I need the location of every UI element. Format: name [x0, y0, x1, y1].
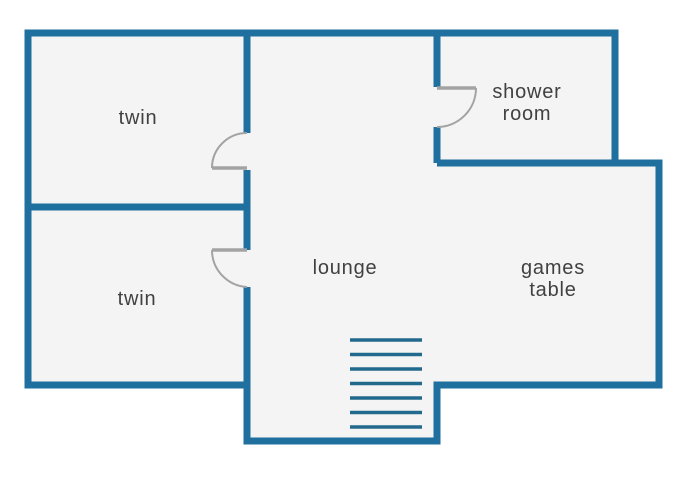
floor-plan: twintwinloungeshower roomgames table [0, 0, 690, 500]
room-label-lounge: lounge [313, 257, 378, 279]
room-label-twin-1: twin [119, 107, 158, 129]
room-label-shower-room: shower room [472, 81, 582, 125]
room-label-twin-2: twin [118, 288, 157, 310]
room-label-games-table: games table [498, 257, 608, 301]
floor-plan-svg [0, 0, 690, 500]
